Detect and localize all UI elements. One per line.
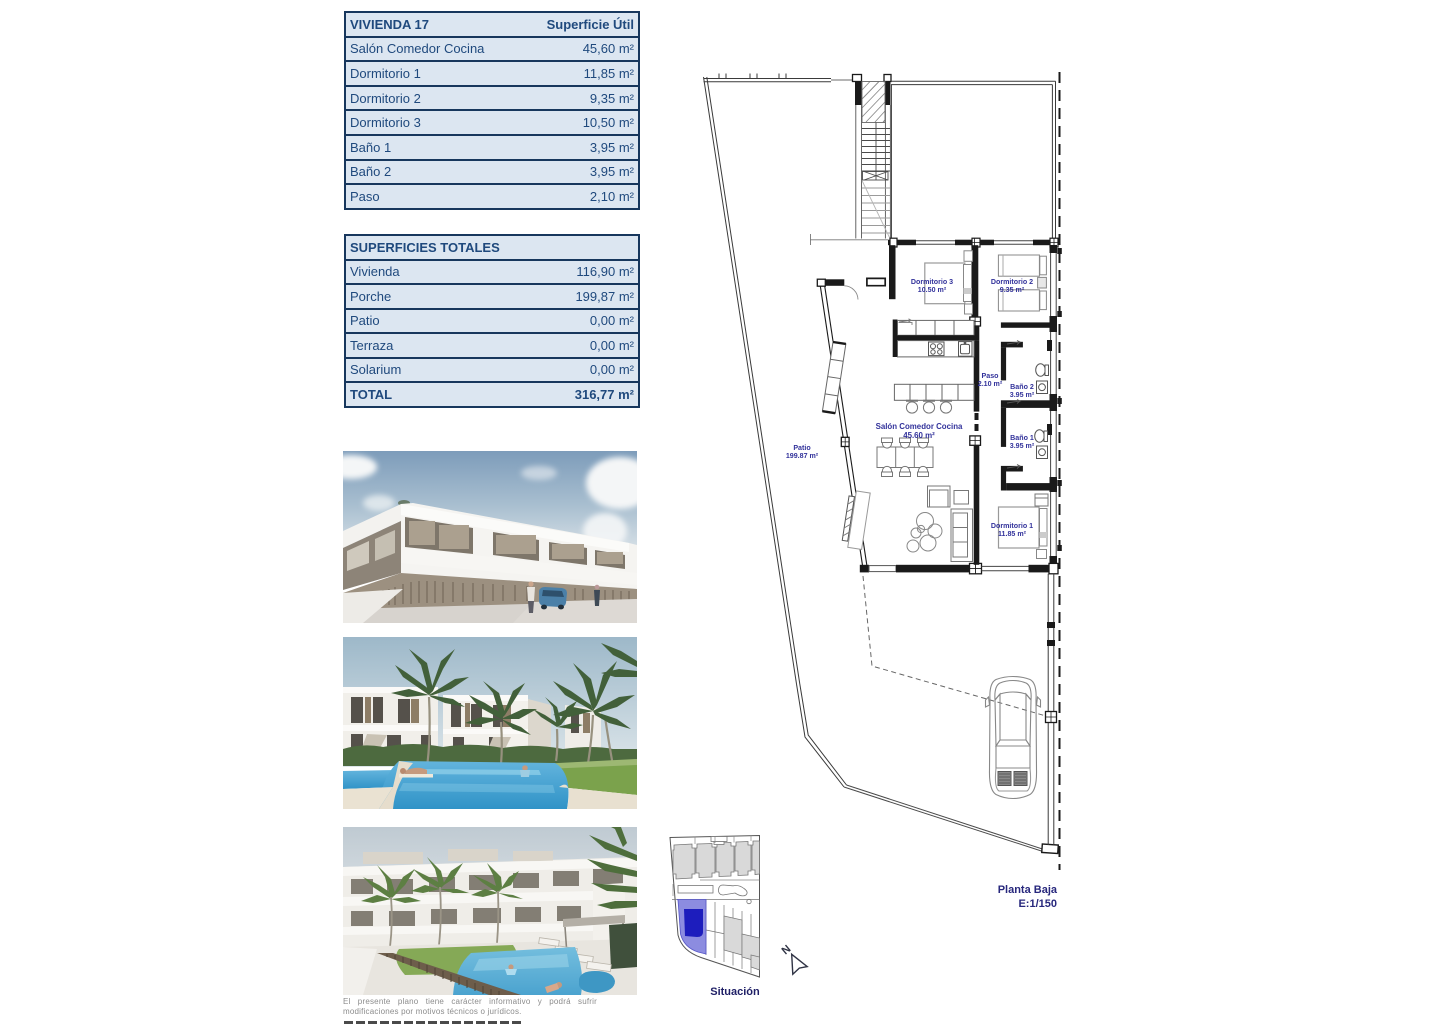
svg-text:Dormitorio 3: Dormitorio 3 [911,278,953,286]
svg-text:Dormitorio 2: Dormitorio 2 [991,278,1033,286]
svg-text:Dormitorio 1: Dormitorio 1 [991,522,1033,530]
svg-text:199.87 m²: 199.87 m² [786,452,819,460]
svg-text:Baño 1: Baño 1 [1010,434,1034,442]
svg-text:Patio: Patio [793,444,811,452]
svg-text:Paso: Paso [982,372,1000,380]
svg-text:11.85 m²: 11.85 m² [998,530,1027,538]
svg-text:3.95 m²: 3.95 m² [1010,391,1035,399]
svg-text:10.50 m²: 10.50 m² [918,286,947,294]
svg-text:9.35 m²: 9.35 m² [1000,286,1025,294]
svg-text:2.10 m²: 2.10 m² [978,380,1003,388]
svg-text:E:1/150: E:1/150 [1018,898,1057,910]
svg-text:Baño 2: Baño 2 [1010,383,1034,391]
svg-text:Salón Comedor Cocina: Salón Comedor Cocina [876,422,963,431]
svg-text:Situación: Situación [710,986,760,998]
svg-text:Planta Baja: Planta Baja [998,884,1058,896]
svg-text:45.60 m²: 45.60 m² [903,431,935,440]
svg-text:3.95 m²: 3.95 m² [1010,442,1035,450]
